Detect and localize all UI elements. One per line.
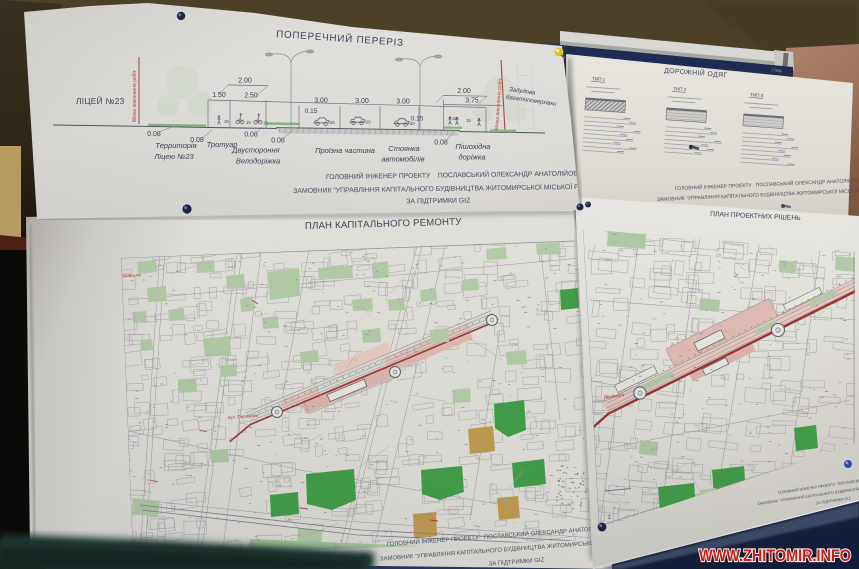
svg-text:ТИП 2: ТИП 2: [673, 86, 687, 92]
svg-text:ТИП 3: ТИП 3: [750, 92, 764, 98]
svg-text:ТИП 1: ТИП 1: [592, 76, 606, 82]
svg-text:WWW.ZHITOMIR.INFO: WWW.ZHITOMIR.INFO: [699, 546, 851, 565]
